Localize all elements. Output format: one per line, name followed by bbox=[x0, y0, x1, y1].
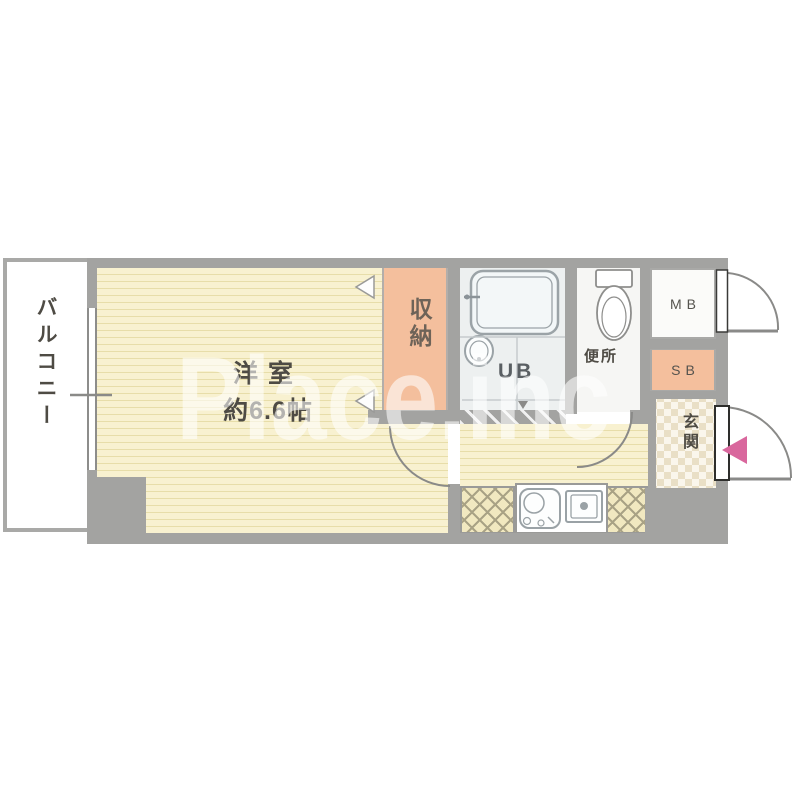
service-door bbox=[717, 270, 779, 332]
wall-pillar bbox=[89, 477, 146, 537]
wall-closet-bath bbox=[448, 262, 460, 412]
wall-bath-door bbox=[460, 410, 566, 424]
room-size: 約6.6帖 bbox=[128, 393, 408, 430]
entrance-door bbox=[715, 406, 791, 480]
room-name: 洋室 bbox=[128, 356, 408, 393]
wall-right-top bbox=[716, 258, 728, 272]
entrance-label: 玄関 bbox=[676, 413, 700, 453]
kitchen-sink-unit bbox=[515, 483, 608, 534]
balcony-label: バルコニー bbox=[30, 296, 60, 431]
wall-right-bottom bbox=[716, 479, 728, 544]
toilet-label: 便所 bbox=[584, 345, 618, 366]
wall-bath-toilet bbox=[565, 262, 577, 414]
closet-label: 収納 bbox=[402, 297, 436, 351]
room-label: 洋室 約6.6帖 bbox=[128, 356, 408, 430]
kitchen-counter-right bbox=[606, 486, 650, 534]
shoe-box-label: SB bbox=[650, 348, 716, 392]
kitchen-counter-left bbox=[460, 486, 515, 534]
unit-bath-label: UB bbox=[498, 360, 534, 384]
balcony-window bbox=[87, 308, 97, 472]
floorplan-page: { "plan": { "watermark": "Place.inc", "l… bbox=[0, 0, 800, 800]
wall-right-mid bbox=[716, 331, 728, 408]
meter-box-label: MB bbox=[650, 268, 716, 339]
wall-bottom bbox=[87, 533, 728, 544]
entrance-marker-icon bbox=[722, 436, 747, 464]
wall-top bbox=[87, 258, 728, 268]
wall-sb-bottom bbox=[648, 391, 716, 399]
wall-left-upper bbox=[87, 258, 97, 310]
toilet-floor bbox=[577, 268, 640, 412]
wall-entrance-step bbox=[648, 399, 656, 488]
wall-room-kitchen bbox=[448, 484, 460, 534]
unit-bath-floor bbox=[460, 268, 565, 410]
wall-entrance-block bbox=[645, 488, 716, 534]
